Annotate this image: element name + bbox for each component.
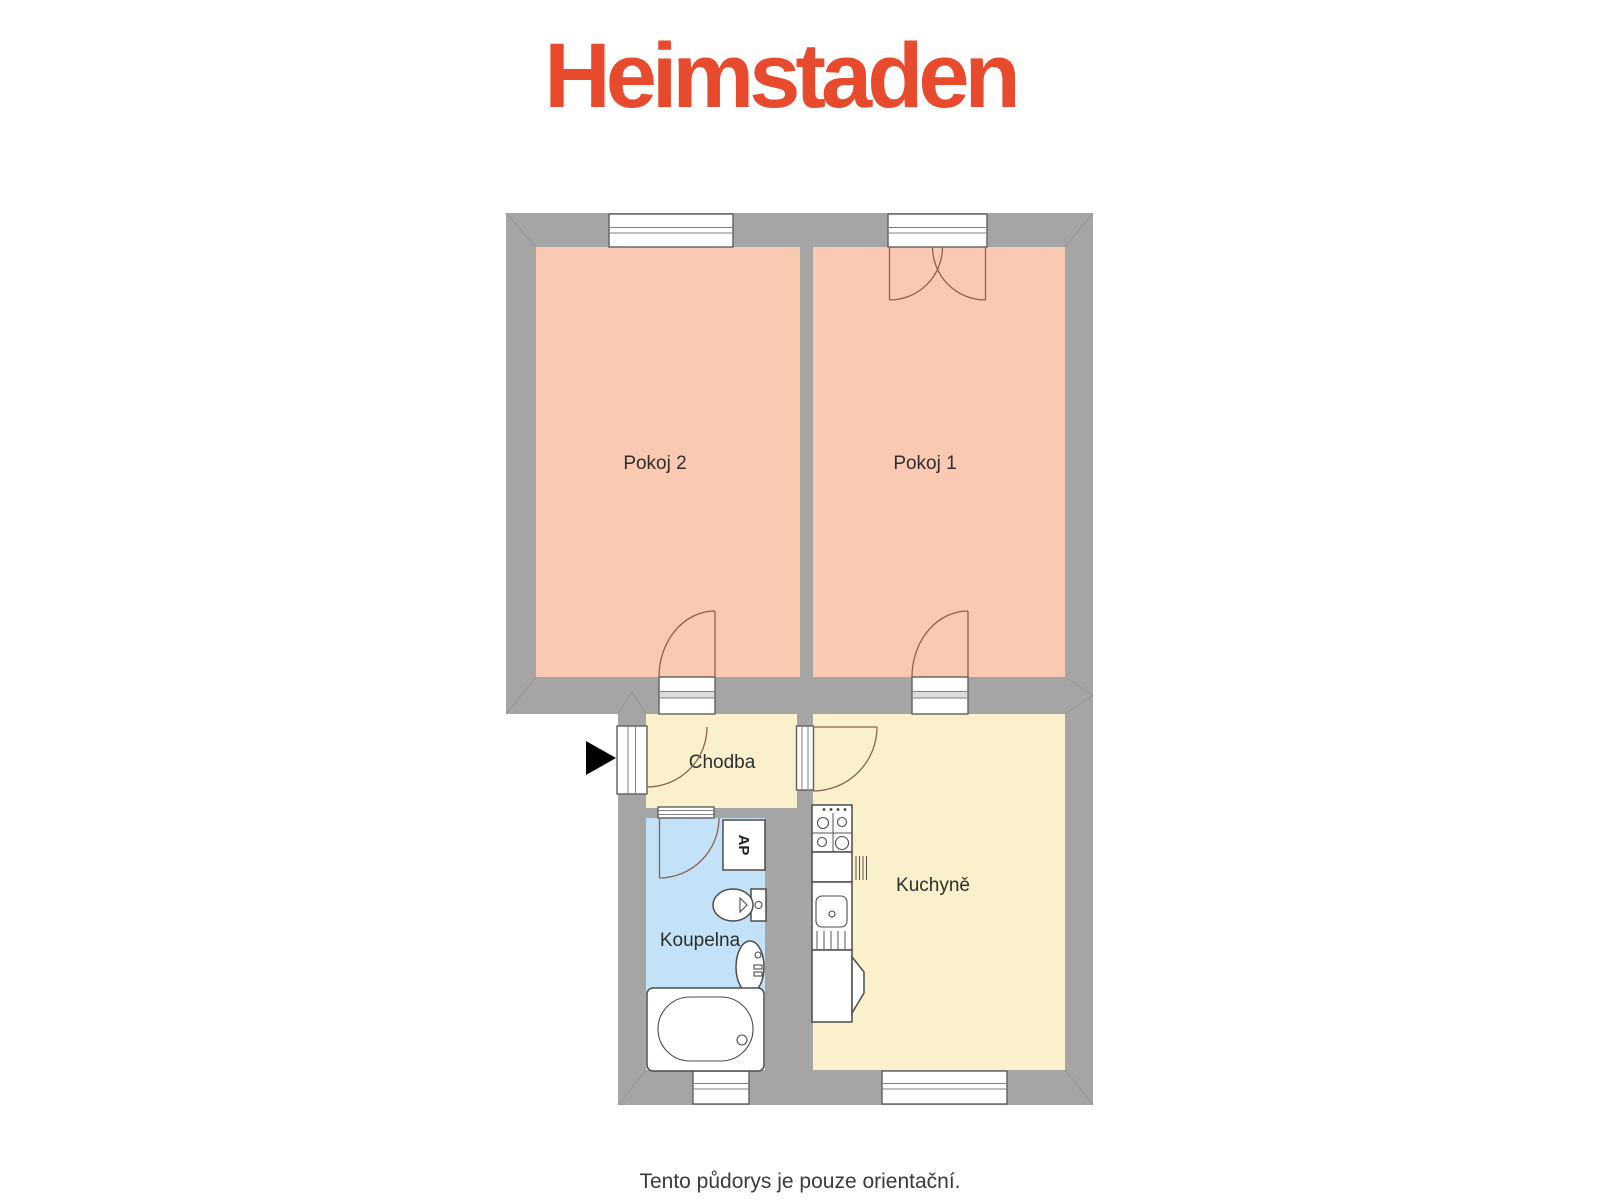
toilet bbox=[713, 889, 766, 921]
window-kuchyne bbox=[882, 1071, 1007, 1104]
floor-plan: Pokoj 2 Pokoj 1 Chodba Koupelna Kuchyně bbox=[0, 0, 1600, 1200]
bathroom-sink bbox=[736, 941, 764, 993]
page: Heimstaden Pokoj 2 Pokoj bbox=[0, 0, 1600, 1200]
room-label-pokoj1: Pokoj 1 bbox=[893, 453, 956, 474]
room-pokoj1: Pokoj 1 bbox=[813, 247, 1065, 677]
room-chodba: Chodba bbox=[646, 714, 797, 808]
washing-machine: AP bbox=[723, 820, 765, 870]
stove bbox=[812, 805, 852, 852]
washing-machine-label: AP bbox=[735, 835, 752, 856]
kitchen-sink bbox=[812, 882, 852, 950]
room-label-kuchyne: Kuchyně bbox=[896, 875, 970, 896]
bathtub bbox=[647, 988, 764, 1071]
room-label-pokoj2: Pokoj 2 bbox=[623, 453, 686, 474]
room-label-chodba: Chodba bbox=[689, 752, 756, 773]
room-pokoj2: Pokoj 2 bbox=[536, 247, 800, 677]
disclaimer-note: Tento půdorys je pouze orientační. bbox=[639, 1170, 960, 1194]
window-pokoj2 bbox=[609, 214, 733, 247]
window-koupelna bbox=[693, 1071, 749, 1104]
room-label-koupelna: Koupelna bbox=[660, 930, 741, 951]
entrance-arrow-icon bbox=[586, 741, 616, 775]
